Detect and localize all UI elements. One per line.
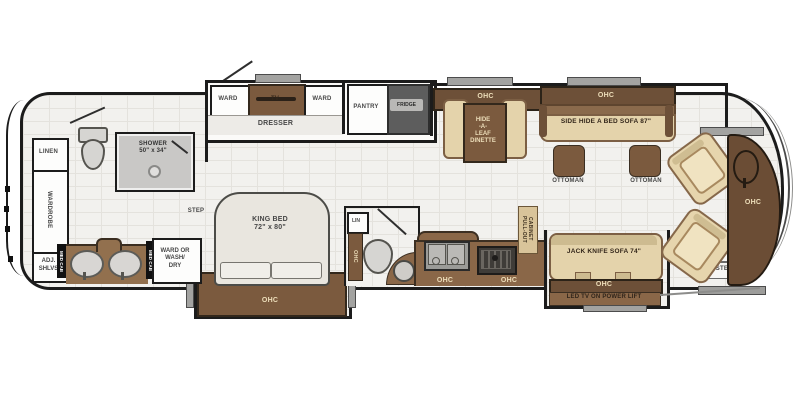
jack-knife-sofa-back <box>551 235 657 245</box>
corner-sink <box>393 260 415 282</box>
shower-drain-icon <box>148 165 161 178</box>
pantry-cabinet <box>347 84 389 135</box>
faucet-icon <box>432 257 440 265</box>
ottoman-right <box>629 145 661 177</box>
rear-marker-icon <box>4 206 9 212</box>
half-bath-ohc-cabinet <box>348 233 363 281</box>
vanity-sink-left <box>70 250 104 278</box>
medicine-cabinet-left <box>57 244 66 278</box>
slide-handle <box>567 77 641 86</box>
ward-or-washdry-cabinet <box>152 238 202 284</box>
wall-bath-bedroom <box>205 92 208 162</box>
linen-cabinet <box>32 138 69 172</box>
shower-stall <box>115 132 195 192</box>
slide-handle <box>447 77 513 86</box>
dinette-table <box>463 103 507 163</box>
steering-column-icon <box>743 178 746 188</box>
side-sofa-arm-left <box>539 105 547 137</box>
side-sofa-seat <box>540 114 676 142</box>
wardrobe-cabinet-right <box>304 85 344 119</box>
faucet-icon <box>451 257 459 265</box>
bed-pillow-left <box>220 262 271 279</box>
rear-marker-icon <box>8 256 13 262</box>
side-sofa-arm-right <box>665 105 673 137</box>
bed-pillow-right <box>271 262 322 279</box>
bedroom-tv-cabinet <box>248 84 306 119</box>
fridge-label-plate <box>390 99 423 111</box>
wall-pantry-divider <box>342 83 345 134</box>
rear-marker-icon <box>5 186 10 192</box>
steering-wheel-icon <box>733 150 759 184</box>
rv-floorplan-canvas: WARD TV WARD DRESSER PANTRY FRIDGE OHC H… <box>0 0 800 400</box>
tv-screen-icon <box>256 97 296 101</box>
rear-marker-icon <box>5 226 10 232</box>
wardrobe-tall-cabinet <box>32 170 69 254</box>
vanity-sink-right <box>108 250 142 278</box>
faucet-icon <box>121 272 124 280</box>
slide-handle <box>255 74 301 83</box>
half-bath-linen-cabinet <box>347 212 369 234</box>
led-tv-lift <box>549 292 661 306</box>
faucet-icon <box>83 272 86 280</box>
slide-handle <box>583 305 647 312</box>
wardrobe-cabinet-left <box>210 85 250 119</box>
dresser-counter <box>208 115 343 135</box>
cooktop-knob-icon <box>492 255 498 261</box>
ottoman-left <box>553 145 585 177</box>
pull-out-cabinet <box>518 206 538 254</box>
